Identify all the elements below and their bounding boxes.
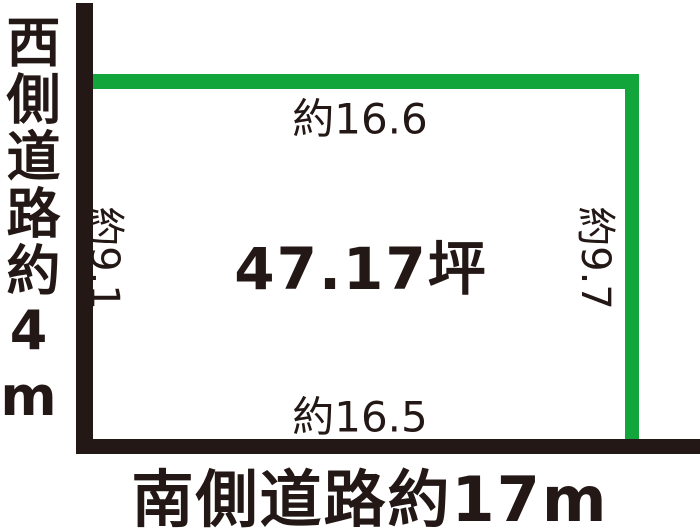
south-road-label: 南側道路約17m [132, 449, 609, 529]
east-dimension-label: 約9.7 [570, 206, 628, 310]
area-label: 47.17坪 [234, 222, 487, 306]
south-dimension-label: 約16.5 [292, 384, 428, 445]
north-dimension-label: 約16.6 [292, 86, 428, 147]
west-road-label: 西側道路約4m [1, 14, 55, 431]
land-plot-diagram: 西側道路約4m 約16.6 約9.1 47.17坪 約9.7 約16.5 南側道… [0, 0, 700, 529]
west-dimension-label: 約9.1 [79, 206, 137, 310]
